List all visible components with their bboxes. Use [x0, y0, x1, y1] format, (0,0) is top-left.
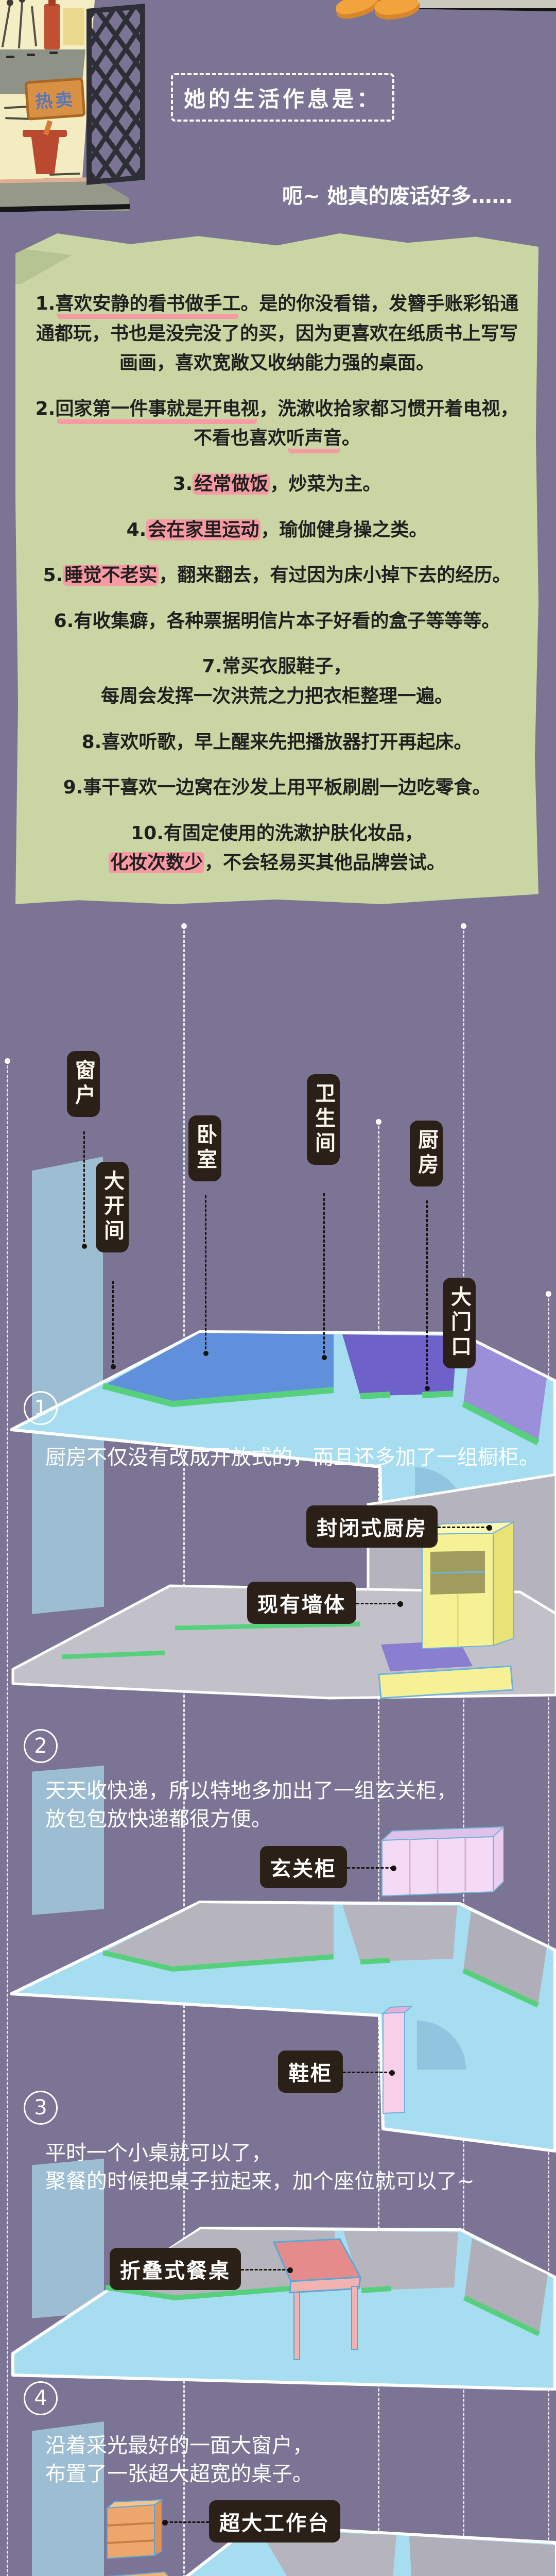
room-label-bedroom: 卧室: [188, 1115, 221, 1181]
room-label-bathroom: 卫生间: [307, 1074, 340, 1165]
section-text: 放包包放快递都很方便。: [45, 1802, 272, 1832]
callout-connector: [347, 1867, 393, 1869]
cabinet-side: [493, 1522, 514, 1646]
section-number: 2: [24, 1729, 58, 1763]
habit-item: 3.经常做饭，炒菜为主。: [31, 469, 523, 499]
lattice-fence: [86, 4, 145, 185]
habit-item: 10.有固定使用的洗漱护肤化妆品，化妆次数少，不会轻易买其他品牌尝试。: [31, 819, 523, 878]
habit-item: 5.睡觉不老实，翻来翻去，有过因为床小掉下去的经历。: [31, 561, 523, 590]
section-text: 厨房不仅没有改成开放式的，而且还多加了一组橱柜。: [45, 1440, 540, 1470]
callout-connector: [165, 2521, 209, 2523]
callout-connector: [343, 2072, 392, 2073]
paper-torn-corner: [15, 248, 72, 284]
bathroom-area: [342, 1905, 457, 1962]
habit-item: 8.喜欢听歌，早上醒来先把播放器打开再起床。: [31, 727, 523, 757]
habit-list: 1.喜欢安静的看书做手工。是的你没看错，发簪手账彩铅通通都玩，书也是没完没了的买…: [31, 289, 523, 878]
callout-connector: [356, 1603, 400, 1604]
guide-dot: [461, 923, 466, 929]
stall-sign: 热卖: [24, 77, 85, 121]
desk-top: [100, 2572, 177, 2576]
room-label-kitchen: 厨房: [410, 1121, 443, 1187]
bench-strip: [417, 0, 556, 11]
callout-connector: [241, 2269, 290, 2270]
stall-box: [63, 8, 84, 45]
room-label-window: 窗户: [67, 1051, 100, 1117]
callout-shoe-cabinet: 鞋柜: [278, 2050, 343, 2093]
desk-hutch-side: [154, 2500, 162, 2555]
section-number: 3: [24, 2091, 58, 2125]
habit-item: 1.喜欢安静的看书做手工。是的你没看错，发簪手账彩铅通通都玩，书也是没完没了的买…: [31, 289, 523, 378]
label-connector: [112, 1281, 114, 1367]
counter-mark: [6, 56, 14, 58]
habit-item: 7.常买衣服鞋子，每周会发挥一次洪荒之力把衣柜整理一遍。: [31, 652, 523, 711]
shoe-illustration: [374, 0, 422, 22]
section-text: 沿着采光最好的一面大窗户，: [45, 2429, 313, 2459]
street-stall-illustration: 热卖: [0, 0, 154, 242]
label-connector: [83, 1131, 85, 1247]
counter-mark: [49, 52, 58, 54]
section-text: 天天收快递，所以特地多加出了一组玄关柜，: [45, 1774, 457, 1804]
habit-item: 2.回家第一件事就是开电视，洗漱收拾家都习惯开着电视，不看也喜欢听声音。: [31, 394, 523, 453]
table-leg: [294, 2293, 300, 2360]
shelf-line: [430, 1572, 485, 1573]
callout-folding-table: 折叠式餐桌: [110, 2248, 241, 2290]
callout-closed-kitchen: 封闭式厨房: [306, 1505, 438, 1548]
desk-hutch: [107, 2505, 154, 2558]
notes-paper: 1.喜欢安静的看书做手工。是的你没看错，发簪手账彩铅通通都玩，书也是没完没了的买…: [15, 233, 538, 904]
infographic-poster: 热卖 她的生活作息是： 呃~ 她真的废话好多…… 1.喜欢安静的看书做手工。是的…: [0, 0, 556, 2576]
section-number: 4: [24, 2381, 58, 2415]
bathroom-area: [343, 2231, 458, 2291]
page-title: 她的生活作息是：: [184, 82, 381, 113]
callout-connector: [438, 1527, 489, 1528]
section-number: 1: [24, 1391, 58, 1425]
label-connector: [323, 1193, 325, 1358]
subtitle-text: 呃~ 她真的废话好多……: [282, 179, 512, 209]
table-leg: [352, 2286, 357, 2349]
label-connector: [205, 1195, 206, 1354]
guide-dot: [376, 1119, 381, 1125]
room-label-open-room: 大开间: [96, 1162, 129, 1252]
label-connector: [426, 1200, 428, 1389]
section-text: 聚餐的时候把桌子拉起来，加个座位就可以了~: [45, 2164, 475, 2194]
callout-existing-wall: 现有墙体: [247, 1582, 356, 1624]
sauce-bottle: [44, 4, 60, 49]
section-text: 平时一个小桌就可以了，: [45, 2136, 272, 2166]
habit-item: 9.事干喜欢一边窝在沙发上用平板刷剧一边吃零食。: [31, 773, 523, 803]
title-box: 她的生活作息是：: [171, 73, 394, 122]
bathroom-area: [342, 1334, 457, 1396]
guide-dot: [181, 923, 187, 929]
habit-item: 6.有收集癖，各种票据明信片本子好看的盒子等等等。: [31, 606, 523, 636]
callout-entry-cabinet: 玄关柜: [260, 1846, 347, 1888]
illustration-dining: [0, 2200, 556, 2391]
callout-big-worktable: 超大工作台: [209, 2500, 340, 2543]
shoe-cabinet-front: [383, 2012, 405, 2113]
section-text: 布置了一张超大超宽的桌子。: [45, 2457, 313, 2487]
stall-sign-text: 热卖: [34, 85, 76, 113]
guide-dot: [5, 1058, 10, 1064]
counter-mark: [27, 54, 35, 56]
room-label-entrance: 大门口: [443, 1278, 476, 1368]
entry-cabinet-side: [493, 1827, 503, 1892]
habit-item: 4.会在家里运动，瑜伽健身操之类。: [31, 515, 523, 545]
